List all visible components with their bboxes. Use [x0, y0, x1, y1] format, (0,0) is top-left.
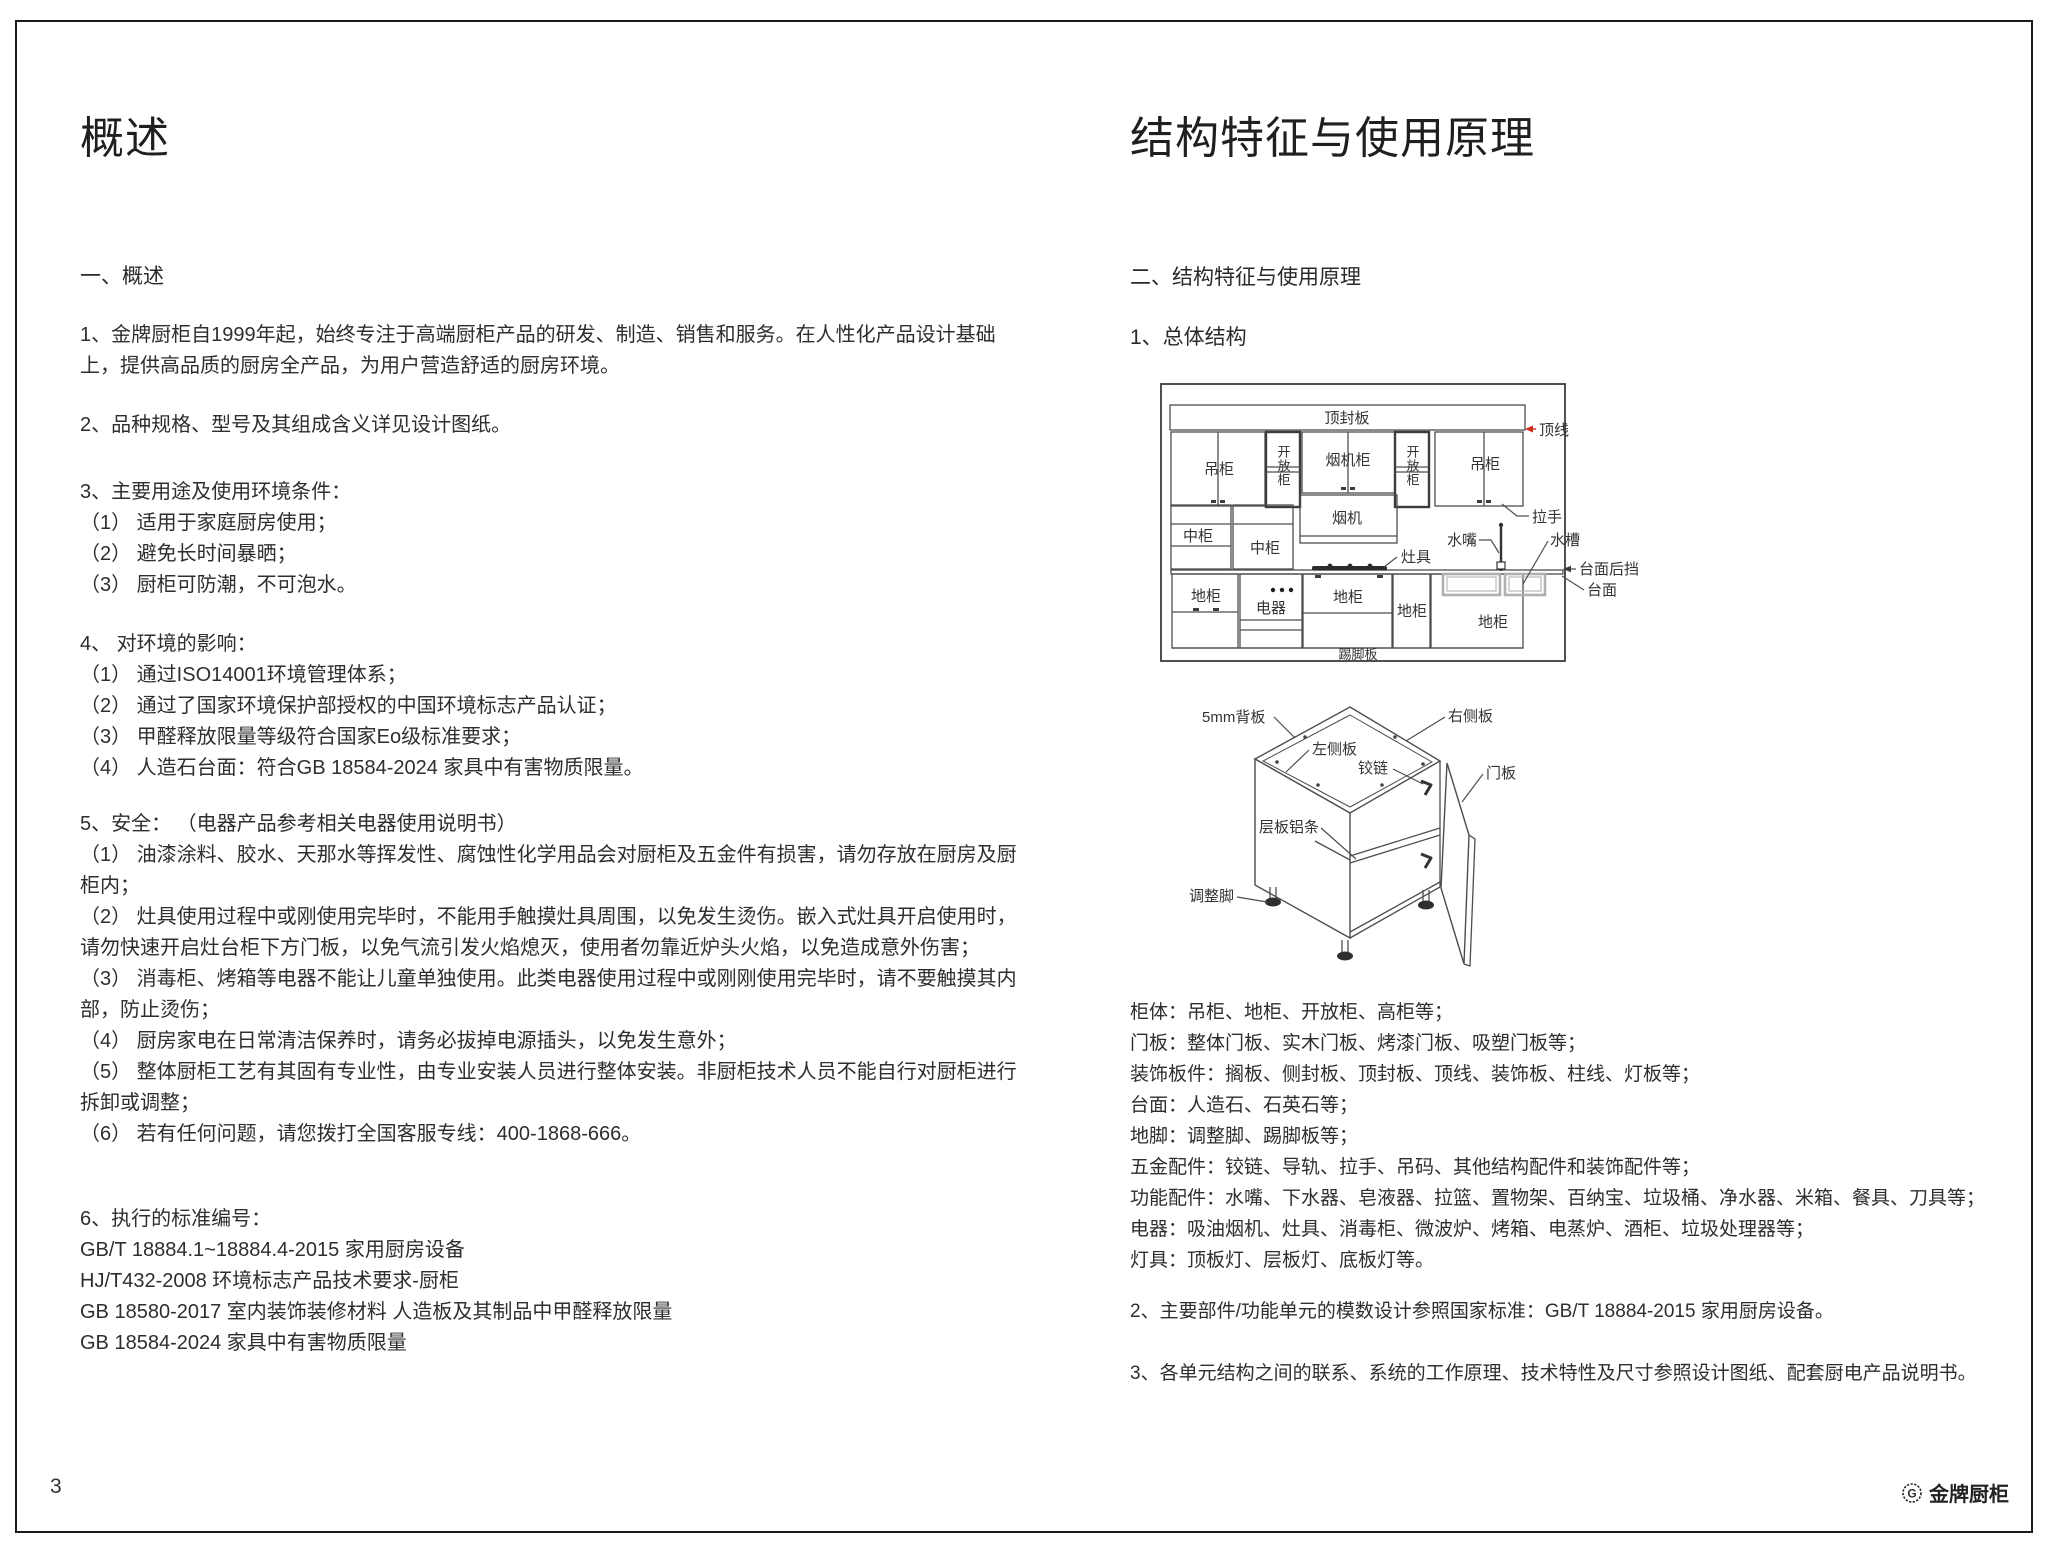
environment-item: （4） 人造石台面：符合GB 18584-2024 家具中有害物质限量。 [80, 753, 1018, 784]
right-panel-label: 右侧板 [1448, 707, 1493, 725]
subsection-overall-structure: 1、总体结构 [1130, 322, 1247, 354]
environment-item: （2） 通过了国家环境保护部授权的中国环境标志产品认证； [80, 691, 1018, 722]
component-line: 装饰板件：搁板、侧封板、顶封板、顶线、装饰板、柱线、灯板等； [1130, 1059, 2010, 1090]
component-line: 电器：吸油烟机、灶具、消毒柜、微波炉、烤箱、电蒸炉、酒柜、垃圾处理器等； [1130, 1214, 2010, 1245]
standards-head: 6、执行的标准编号： [80, 1204, 1018, 1235]
top-line-label: 顶线 [1539, 422, 1569, 439]
handle-tick [1220, 500, 1225, 503]
safety-item: （3） 消毒柜、烤箱等电器不能让儿童单独使用。此类电器使用过程中或刚刚使用完毕时… [80, 964, 1018, 1026]
section-environment: 4、 对环境的影响： （1） 通过ISO14001环境管理体系； （2） 通过了… [80, 629, 1018, 784]
paragraph-unit-relations: 3、各单元结构之间的联系、系统的工作原理、技术特性及尺寸参照设计图纸、配套厨电产… [1130, 1358, 2010, 1389]
screw-hole [1303, 735, 1307, 739]
bottom-front-edge [1350, 887, 1440, 938]
shelf-strip-label: 层板铝条 [1259, 818, 1319, 836]
paragraph-company: 1、金牌厨柜自1999年起，始终专注于高端厨柜产品的研发、制造、销售和服务。在人… [80, 320, 1018, 382]
door-panel-leader [1462, 774, 1483, 802]
hinge-shape-bottom [1421, 854, 1431, 868]
screw-hole [1316, 783, 1320, 787]
burner [1328, 564, 1333, 569]
faucet-base [1497, 562, 1505, 569]
door-panel-label: 门板 [1486, 764, 1516, 782]
screw-hole [1380, 783, 1384, 787]
sink-label: 水槽 [1550, 532, 1580, 549]
component-line: 功能配件：水嘴、下水器、皂液器、拉篮、置物架、百纳宝、垃圾桶、净水器、米箱、餐具… [1130, 1183, 2010, 1214]
environment-item: （3） 甲醛释放限量等级符合国家Eo级标准要求； [80, 722, 1018, 753]
brand-logo: G 金牌厨柜 [1900, 1478, 2009, 1507]
mid-cabinet-right-label: 中柜 [1250, 540, 1280, 557]
component-line: 台面：人造石、石英石等； [1130, 1090, 2010, 1121]
faucet-leader [1479, 540, 1499, 553]
base-cabinet-label: 地柜 [1191, 588, 1221, 605]
safety-item: （4） 厨房家电在日常清洁保养时，请务必拔掉电源插头，以免发生意外； [80, 1026, 1018, 1057]
base-cabinet-label: 地柜 [1333, 589, 1363, 606]
kitchen-elevation-diagram: 顶封板 顶线 吊柜 开放柜 烟机柜 开放柜 [1155, 383, 1660, 668]
safety-item: （2） 灶具使用过程中或刚使用完毕时，不能用手触摸灶具周围，以免发生烫伤。嵌入式… [80, 902, 1018, 964]
handle-tick [1486, 500, 1491, 503]
handle-label: 拉手 [1532, 509, 1562, 526]
base-cabinet-label: 地柜 [1397, 603, 1427, 620]
back-panel-leader [1274, 717, 1295, 738]
hood-cabinet-label: 烟机柜 [1325, 452, 1370, 469]
sink-basin-left-inner [1447, 577, 1496, 591]
brand-logo-icon: G [1900, 1481, 1924, 1505]
standards-item: GB/T 18884.1~18884.4-2015 家用厨房设备 [80, 1235, 1018, 1266]
component-line: 柜体：吊柜、地柜、开放柜、高柜等； [1130, 997, 2010, 1028]
manual-page: 概述 一、概述 1、金牌厨柜自1999年起，始终专注于高端厨柜产品的研发、制造、… [0, 0, 2048, 1547]
foot-base [1418, 901, 1434, 910]
component-line: 门板：整体门板、实木门板、烤漆门板、吸塑门板等； [1130, 1028, 2010, 1059]
door-face [1441, 763, 1469, 964]
back-panel-label: 5mm背板 [1202, 708, 1265, 726]
handle-tick [1477, 500, 1482, 503]
faucet-label: 水嘴 [1447, 532, 1477, 549]
standards-item: HJ/T432-2008 环境标志产品技术要求-厨柜 [80, 1266, 1018, 1297]
shelf-front-edge [1350, 835, 1440, 863]
countertop-label: 台面 [1587, 582, 1617, 599]
safety-item: （5） 整体厨柜工艺有其固有专业性，由专业安装人员进行整体安装。非厨柜技术人员不… [80, 1057, 1018, 1119]
usage-head: 3、主要用途及使用环境条件： [80, 477, 1018, 508]
base-cabinet-3d-diagram: 5mm背板 右侧板 左侧板 铰链 门板 层板铝条 调整脚 [1155, 685, 1565, 995]
screw-hole [1275, 760, 1279, 764]
handle-tick [1213, 608, 1219, 611]
open-cabinet-right-label: 开放柜 [1405, 445, 1420, 487]
component-line: 地脚：调整脚、踢脚板等； [1130, 1121, 2010, 1152]
component-list: 柜体：吊柜、地柜、开放柜、高柜等； 门板：整体门板、实木门板、烤漆门板、吸塑门板… [1130, 997, 2010, 1276]
standards-item: GB 18584-2024 家具中有害物质限量 [80, 1328, 1018, 1359]
cooktop-leader [1384, 557, 1397, 567]
environment-head: 4、 对环境的影响： [80, 629, 1018, 660]
section-safety: 5、安全： （电器产品参考相关电器使用说明书） （1） 油漆涂料、胶水、天那水等… [80, 809, 1018, 1150]
usage-item: （1） 适用于家庭厨房使用； [80, 508, 1018, 539]
base-cabinet-label: 地柜 [1478, 614, 1508, 631]
mid-cabinet-left-label: 中柜 [1183, 528, 1213, 545]
sink-basin-right-inner [1509, 577, 1541, 591]
cooktop-label: 灶具 [1401, 549, 1431, 566]
standards-item: GB 18580-2017 室内装饰装修材料 人造板及其制品中甲醛释放限量 [80, 1297, 1018, 1328]
usage-item: （3） 厨柜可防潮，不可泡水。 [80, 570, 1018, 601]
appliance-knob [1289, 588, 1293, 592]
paragraph-specs: 2、品种规格、型号及其组成含义详见设计图纸。 [80, 410, 1018, 441]
burner [1368, 564, 1373, 569]
section-standards: 6、执行的标准编号： GB/T 18884.1~18884.4-2015 家用厨… [80, 1204, 1018, 1359]
left-panel-label: 左侧板 [1312, 740, 1357, 758]
foot-label: 调整脚 [1189, 888, 1234, 905]
open-cabinet-left-label: 开放柜 [1276, 445, 1291, 487]
wall-cabinet-right-label: 吊柜 [1470, 456, 1500, 473]
screw-hole [1421, 762, 1425, 766]
usage-item: （2） 避免长时间暴晒； [80, 539, 1018, 570]
mid-cabinet-right-shape [1233, 505, 1293, 569]
hood-label: 烟机 [1332, 510, 1362, 527]
page-title-structure: 结构特征与使用原理 [1130, 112, 1535, 166]
component-line: 灯具：顶板灯、层板灯、底板灯等。 [1130, 1245, 2010, 1276]
base-cabinet-shape [1172, 574, 1238, 648]
appliance-label: 电器 [1256, 600, 1286, 617]
right-panel-leader [1406, 717, 1445, 741]
safety-item: （1） 油漆涂料、胶水、天那水等挥发性、腐蚀性化学用品会对厨柜及五金件有损害，请… [80, 840, 1018, 902]
section-heading-overview: 一、概述 [80, 261, 164, 293]
environment-item: （1） 通过ISO14001环境管理体系； [80, 660, 1018, 691]
component-line: 五金配件：铰链、导轨、拉手、吊码、其他结构配件和装饰配件等； [1130, 1152, 2010, 1183]
handle-tick [1211, 500, 1216, 503]
handle-tick [1315, 575, 1321, 578]
foot-base [1337, 952, 1353, 961]
appliance-knob [1271, 588, 1275, 592]
section-heading-structure: 二、结构特征与使用原理 [1130, 262, 1361, 294]
kickboard-label: 踢脚板 [1338, 647, 1377, 662]
page-number: 3 [50, 1475, 62, 1499]
backsplash-label: 台面后挡 [1579, 561, 1639, 578]
foot-base [1265, 898, 1281, 907]
screw-hole [1393, 735, 1397, 739]
wall-cabinet-left-label: 吊柜 [1204, 461, 1234, 478]
handle-tick [1193, 608, 1199, 611]
handle-tick [1341, 487, 1346, 490]
base-cabinet-shape [1303, 574, 1392, 648]
faucet-head [1499, 523, 1503, 527]
logo-letter: G [1907, 1486, 1916, 1500]
section-usage-conditions: 3、主要用途及使用环境条件： （1） 适用于家庭厨房使用； （2） 避免长时间暴… [80, 477, 1018, 601]
top-line-arrowhead [1525, 426, 1533, 433]
safety-item: （6） 若有任何问题，请您拨打全国客服专线：400-1868-666。 [80, 1119, 1018, 1150]
page-title-overview: 概述 [80, 112, 170, 166]
paragraph-modular-standard: 2、主要部件/功能单元的模数设计参照国家标准：GB/T 18884-2015 家… [1130, 1296, 2010, 1327]
brand-name: 金牌厨柜 [1929, 1478, 2009, 1507]
handle-tick [1377, 575, 1383, 578]
appliance-knob [1280, 588, 1284, 592]
safety-head: 5、安全： （电器产品参考相关电器使用说明书） [80, 809, 1018, 840]
top-board-label: 顶封板 [1324, 409, 1369, 427]
handle-tick [1350, 487, 1355, 490]
hinge-label: 铰链 [1358, 759, 1388, 777]
foot-leader [1237, 897, 1267, 902]
burner [1348, 564, 1353, 569]
shelf-front-edge-inner [1350, 828, 1440, 856]
